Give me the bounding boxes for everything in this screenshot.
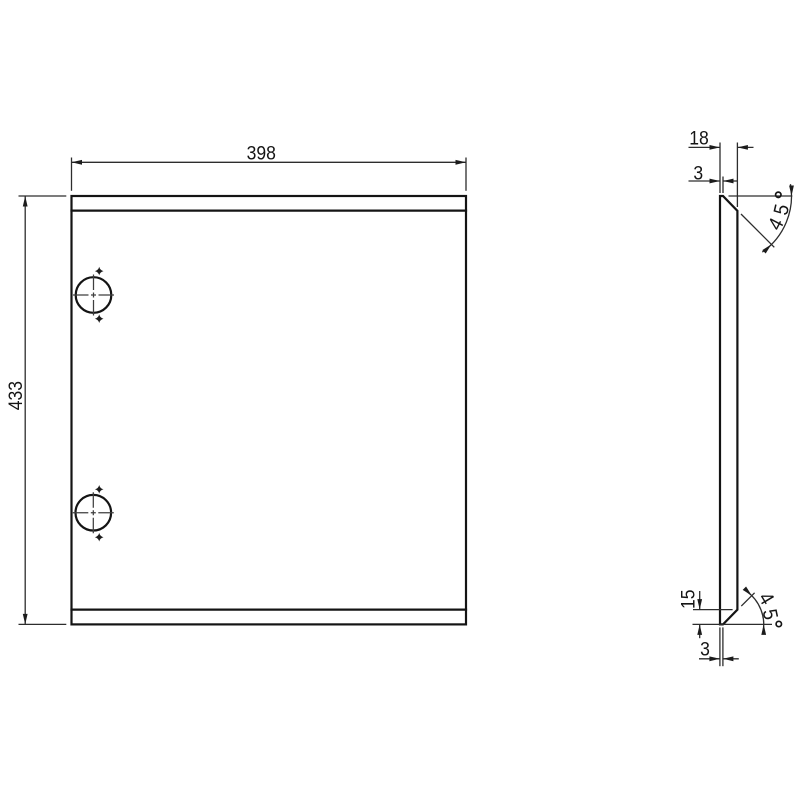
svg-text:18: 18 (689, 127, 709, 149)
svg-text:398: 398 (247, 142, 276, 164)
svg-text:3: 3 (700, 638, 710, 660)
svg-text:15: 15 (677, 590, 699, 610)
svg-text:433: 433 (4, 381, 26, 410)
svg-text:3: 3 (693, 162, 703, 184)
